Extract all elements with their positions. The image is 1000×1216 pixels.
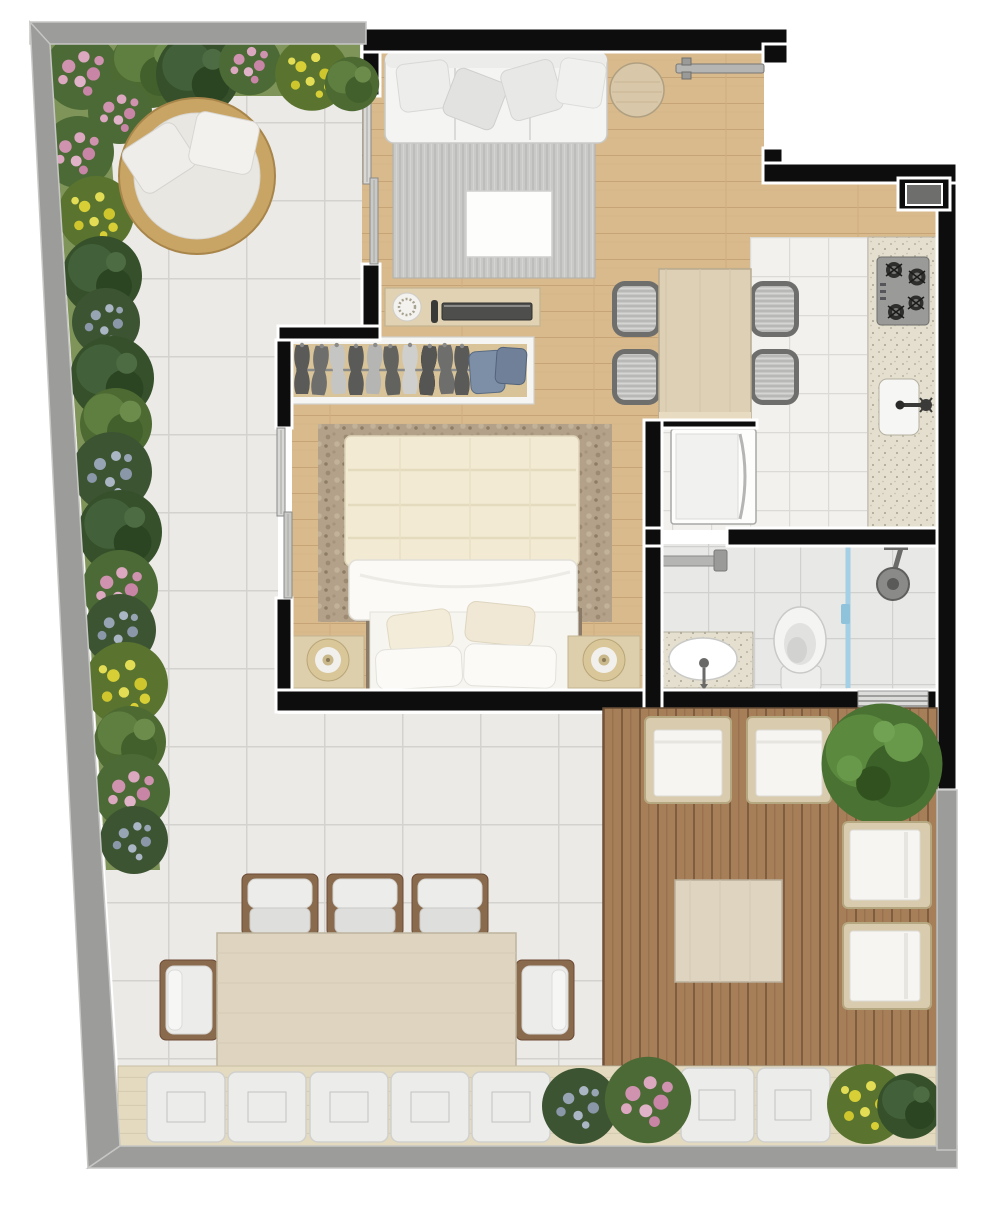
outer-wall-top <box>30 22 366 44</box>
wall-interior-vertical <box>644 420 662 712</box>
dining-chair <box>750 349 799 405</box>
shower-glass-handle <box>841 604 850 624</box>
round-daybed <box>119 98 275 254</box>
floor-plan-svg <box>0 0 1000 1216</box>
service-duct <box>898 178 950 210</box>
floor-plan-image <box>0 0 1000 1216</box>
wall-step <box>278 326 380 340</box>
cooktop <box>877 257 929 325</box>
sliding-door-bedroom <box>277 428 292 598</box>
candle <box>431 300 438 323</box>
wall-bath-divider-stub <box>644 528 662 546</box>
sofa <box>385 52 607 143</box>
deck-armchair <box>747 717 831 803</box>
outer-wall-bottom <box>88 1146 957 1168</box>
toilet <box>774 607 826 690</box>
wall-right <box>937 163 957 790</box>
patio-chair-left <box>160 960 218 1040</box>
wall-top <box>362 28 788 52</box>
patio-dining-table <box>217 933 516 1083</box>
wall-entry-stub-top <box>763 44 788 64</box>
wall-living-west-b <box>362 264 380 330</box>
deck <box>603 704 942 1066</box>
nightstand-right <box>568 636 640 688</box>
sideboard <box>385 288 540 326</box>
patio-chair <box>327 874 403 936</box>
deck-shrub <box>822 704 943 825</box>
bed-pillow <box>463 643 556 688</box>
coffee-table <box>466 191 552 257</box>
bedroom <box>292 424 640 692</box>
nightstand-left <box>292 636 364 688</box>
deck-lounge-chair <box>843 923 931 1009</box>
patio-chair-right <box>516 960 574 1040</box>
dining-chair <box>612 281 661 337</box>
patio-chair <box>242 874 318 936</box>
wall-niche-lip <box>662 420 757 428</box>
bed-small-pillow <box>464 601 536 648</box>
dining-chair <box>750 281 799 337</box>
bench-cushion <box>147 1068 830 1142</box>
wardrobe <box>286 337 534 404</box>
double-bed <box>345 436 582 692</box>
round-side-table <box>610 63 664 117</box>
wall-entry-stub-bottom <box>763 148 783 163</box>
wall-bedroom-west-a <box>276 340 292 428</box>
basin-drain-faucet <box>699 658 709 668</box>
decor-plate <box>393 293 421 321</box>
bed-folded-sheet <box>349 560 577 620</box>
bed-duvet <box>345 436 579 566</box>
dining-table <box>659 269 751 419</box>
deck-lounge-chair <box>843 822 931 908</box>
bed-pillow <box>375 646 463 690</box>
wall-bedroom-west-b <box>276 598 292 690</box>
dining-chair <box>612 349 661 405</box>
deck-table <box>675 880 782 982</box>
cooktop-knobs <box>880 283 886 300</box>
washing-machine <box>671 429 756 524</box>
bathroom-vanity <box>660 632 753 690</box>
patio-chair <box>412 874 488 936</box>
wall-bath-divider <box>727 528 937 546</box>
bench-shrub <box>605 1057 691 1143</box>
deck-armchair <box>645 717 731 803</box>
bench-shrub <box>877 1073 943 1139</box>
outer-wall-right-parapet <box>937 790 957 1150</box>
garden-bench <box>118 1057 943 1146</box>
